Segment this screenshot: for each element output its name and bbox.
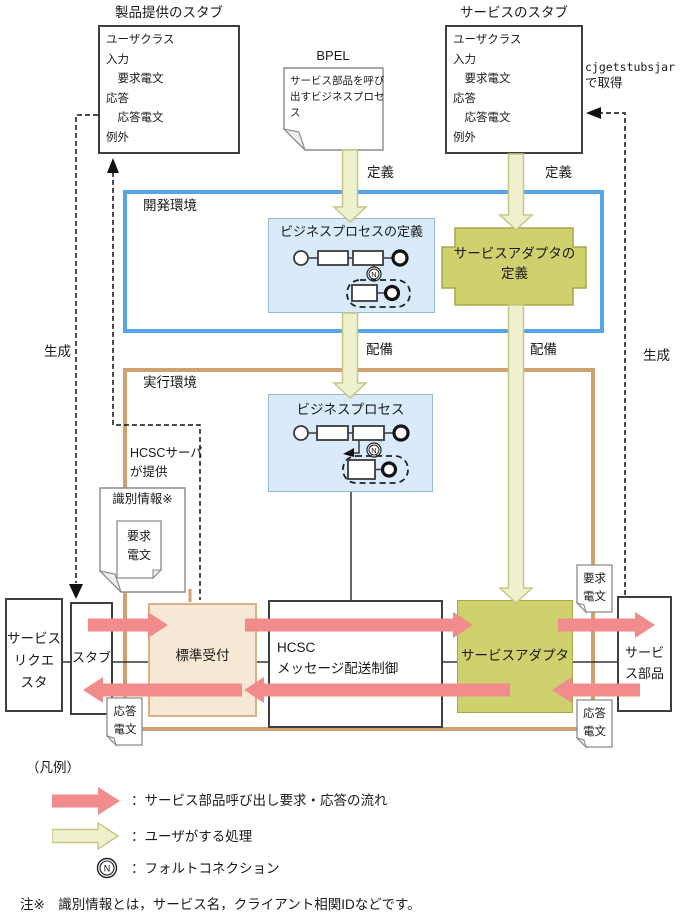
product-stub-content: ユーザクラス 入力 要求電文 応答 応答電文 例外: [106, 31, 175, 148]
activity-node-icon: [318, 251, 348, 265]
stub-label: スタブ: [70, 650, 113, 666]
deploy-arrow-right-icon: [500, 305, 532, 603]
requester-label: サービス リクエ スタ: [5, 628, 63, 694]
define-label-right: 定義: [545, 165, 572, 182]
hcsc-control-label: HCSC メッセージ配送制御: [277, 637, 442, 679]
generate-label-right: 生成: [643, 348, 670, 365]
cjgetstubsjar-label: cjgetstubsjar で取得: [585, 59, 675, 91]
end-node-icon: [383, 463, 396, 476]
request-arrow-2-icon: [245, 612, 473, 638]
generate-label-left: 生成: [44, 344, 71, 361]
end-node-icon: [386, 287, 399, 300]
deploy-label-right: 配備: [530, 342, 557, 359]
response-doc-right-text: 応答 電文: [577, 705, 612, 741]
service-stub-title: サービスのスタブ: [445, 5, 583, 22]
request-arrow-3-icon: [558, 612, 655, 638]
legend-olive-arrow-icon: [52, 822, 120, 850]
bp-definition-label: ビジネスプロセスの定義: [268, 224, 435, 240]
svg-text:N: N: [104, 864, 111, 874]
product-stub-title: 製品提供のスタブ: [98, 5, 240, 22]
legend-title: （凡例）: [26, 760, 80, 777]
start-node-icon: [294, 426, 308, 440]
bpel-label: BPEL: [283, 48, 383, 64]
service-stub-content: ユーザクラス 入力 要求電文 応答 応答電文 例外: [453, 31, 522, 148]
activity-node-icon: [353, 251, 383, 265]
id-info-label: 識別情報※: [100, 492, 185, 508]
request-doc-right-text: 要求 電文: [577, 570, 612, 606]
activity-node-icon: [353, 426, 384, 440]
legend-fault-text: ：フォルトコネクション: [131, 861, 280, 878]
adapter-definition-label: サービスアダプタの 定義: [443, 244, 586, 284]
response-doc-left-text: 応答 電文: [107, 703, 143, 739]
deploy-label-left: 配備: [366, 342, 393, 359]
adapter-label: サービスアダプタ: [457, 648, 573, 665]
activity-node-icon: [352, 285, 377, 301]
end-node-icon: [393, 251, 407, 265]
id-request-doc-text: 要求 電文: [117, 527, 161, 565]
run-env-label: 実行環境: [143, 375, 197, 392]
response-arrow-2-icon: [244, 677, 510, 703]
legend-fault-connection-icon: N: [95, 856, 119, 880]
end-node-icon: [394, 426, 408, 440]
svg-text:N: N: [371, 446, 376, 455]
hcsc-provides-label: HCSCサーバ が提供: [130, 444, 203, 481]
legend-pink-arrow-text: ：サービス部品呼び出し要求・応答の流れ: [131, 793, 388, 810]
legend-pink-arrow-icon: [52, 787, 120, 815]
activity-node-icon: [348, 460, 375, 479]
deploy-arrow-left-icon: [334, 313, 366, 398]
note-text: 注※ 識別情報とは，サービス名，クライアント相関IDなどです。: [20, 897, 421, 914]
diagram-canvas: N N 製品提供のスタブ サービスのスタブ ユーザクラス 入力 要求電文 応答 …: [0, 0, 680, 919]
legend-olive-arrow-text: ：ユーザがする処理: [131, 829, 252, 846]
svg-text:N: N: [371, 270, 376, 279]
define-arrow-right-icon: [500, 154, 532, 230]
activity-node-icon: [317, 426, 348, 440]
request-arrow-1-icon: [88, 612, 168, 638]
fault-arrow-icon: [343, 448, 354, 457]
bpel-doc-text: サービス部品を呼び 出すビジネスプロセ ス: [290, 73, 386, 121]
bp-runtime-label: ビジネスプロセス: [268, 402, 433, 419]
response-arrow-1-icon: [83, 677, 242, 703]
parts-label: サービ ス部品: [617, 642, 672, 684]
reception-label: 標準受付: [148, 648, 257, 665]
dev-env-label: 開発環境: [143, 198, 197, 215]
define-arrow-left-icon: [334, 150, 366, 222]
start-node-icon: [294, 251, 308, 265]
define-label-left: 定義: [367, 165, 394, 182]
